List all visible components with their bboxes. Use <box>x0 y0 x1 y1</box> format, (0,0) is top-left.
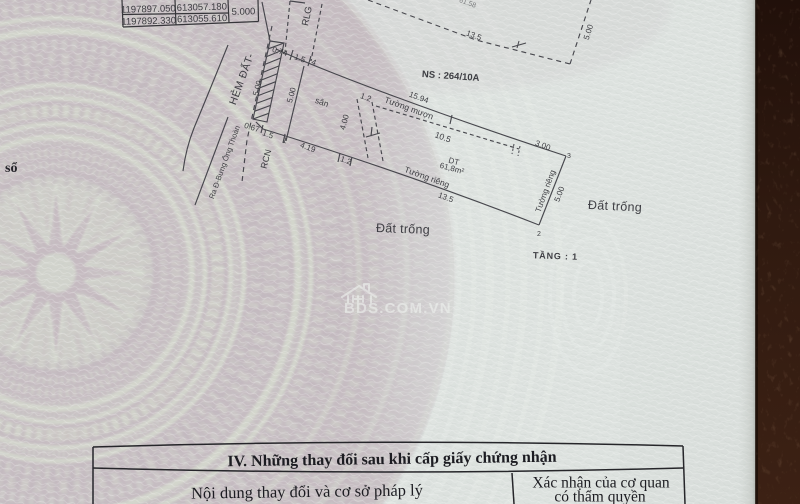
svg-text:1197892.330: 1197892.330 <box>121 15 176 27</box>
svg-text:Đất trống: Đất trống <box>588 198 643 215</box>
svg-text:5.000: 5.000 <box>231 6 255 18</box>
svg-text:BDS.COM.VN: BDS.COM.VN <box>344 300 452 317</box>
svg-text:613055.610: 613055.610 <box>177 13 227 25</box>
svg-text:3: 3 <box>567 153 571 160</box>
svg-text:Nội dung thay đổi và cơ sở phá: Nội dung thay đổi và cơ sở pháp lý <box>191 480 424 502</box>
svg-text:TẦNG : 1: TẦNG : 1 <box>533 250 578 262</box>
svg-text:Đất trống: Đất trống <box>376 221 431 237</box>
svg-text:2: 2 <box>537 231 541 238</box>
svg-text:613057.180: 613057.180 <box>177 2 227 14</box>
svg-text:sổ: sổ <box>5 161 17 176</box>
svg-text:1197897.050: 1197897.050 <box>121 3 176 15</box>
svg-text:có thẩm quyền: có thẩm quyền <box>554 489 646 504</box>
